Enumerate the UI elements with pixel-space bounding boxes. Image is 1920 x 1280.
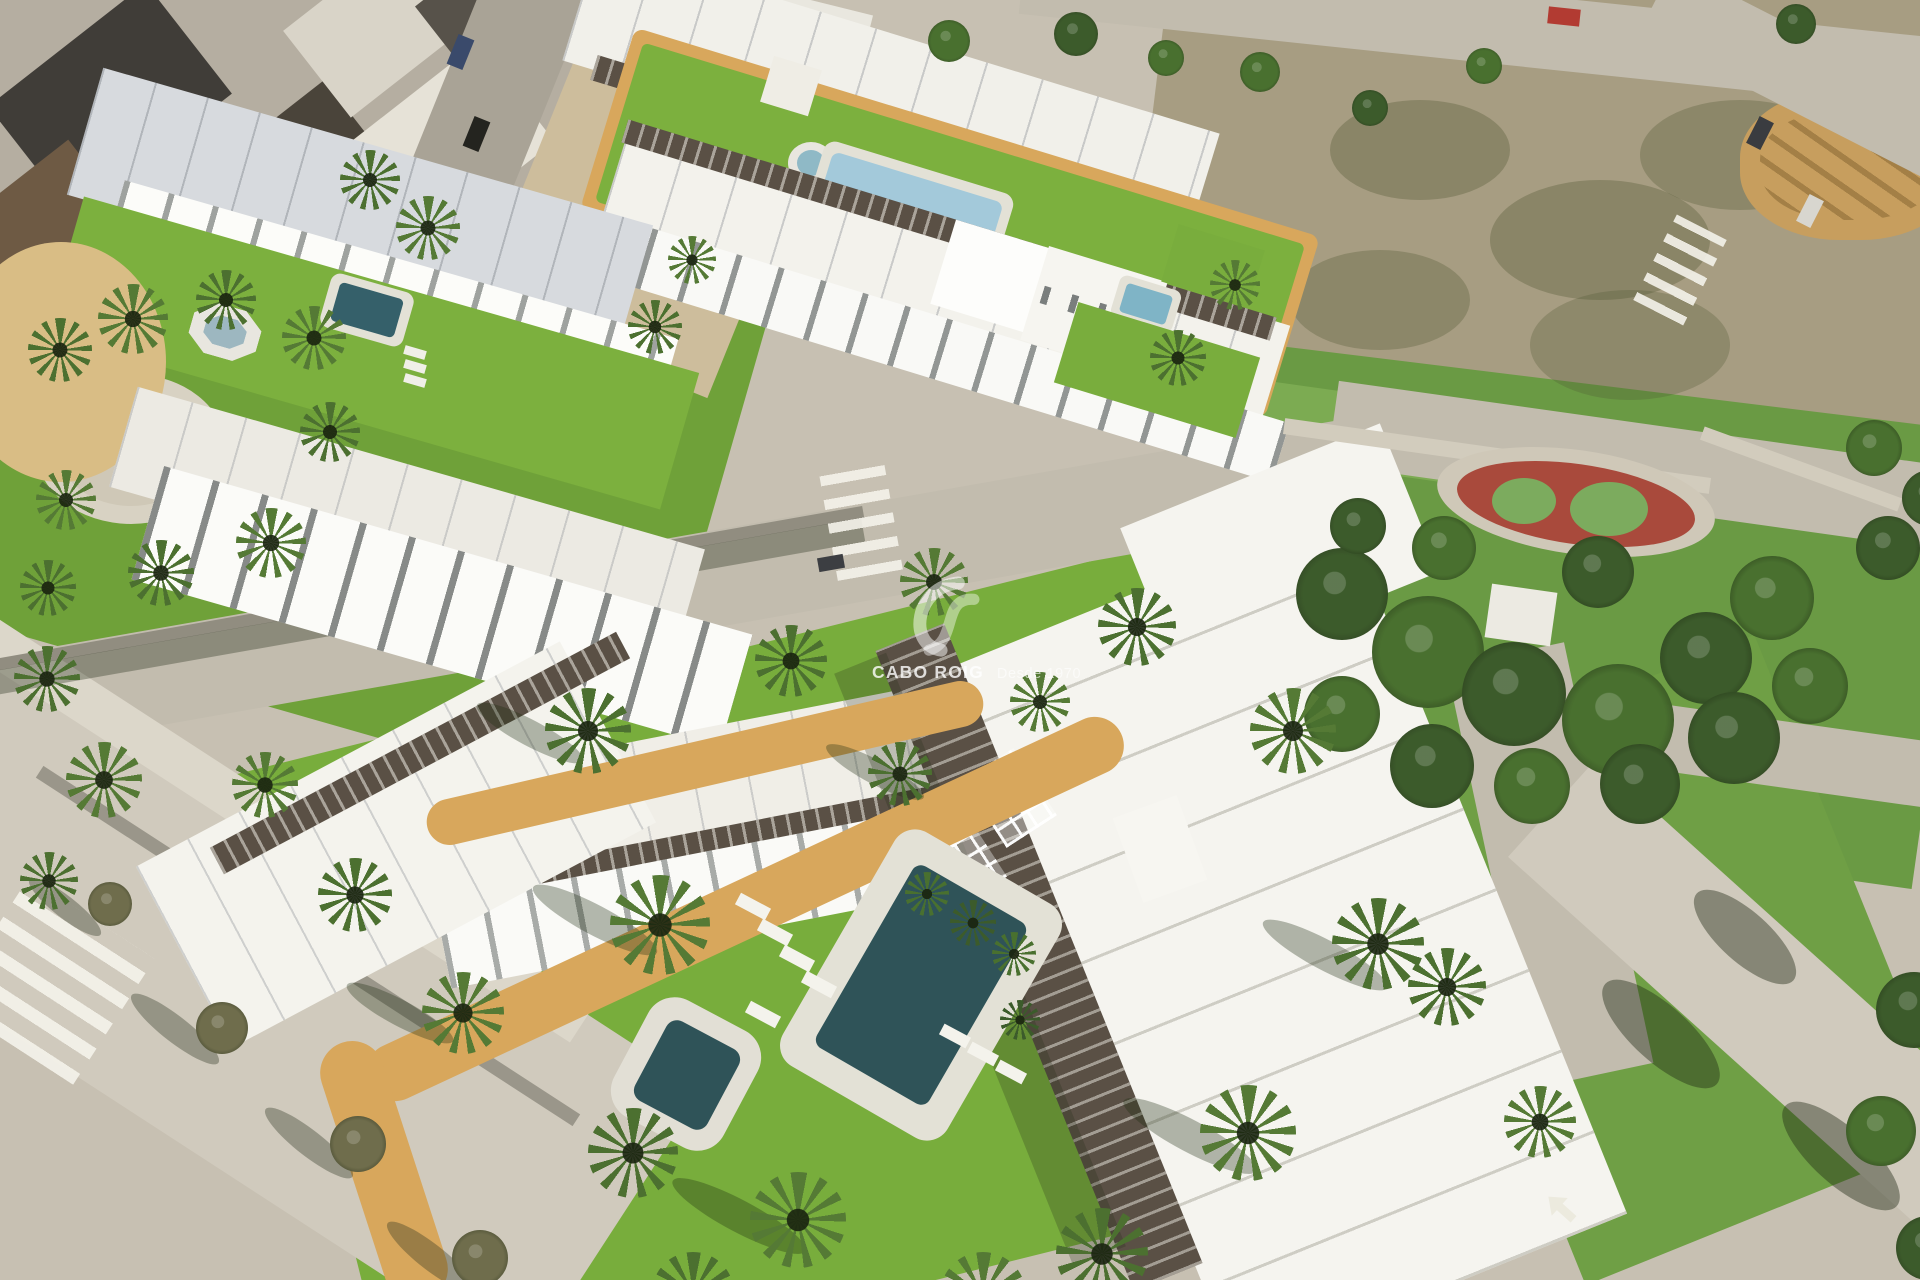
palm-tree xyxy=(422,972,504,1054)
palm-tree xyxy=(868,742,932,806)
park-kiosk xyxy=(1485,584,1558,647)
aerial-render-image: CABO ROIG Desde 1970 xyxy=(0,0,1920,1280)
palm-tree xyxy=(300,402,360,462)
palm-tree xyxy=(1150,330,1206,386)
park-tree xyxy=(1688,692,1780,784)
park-tree xyxy=(1412,516,1476,580)
palm-tree xyxy=(668,236,716,284)
street-tree xyxy=(196,1002,248,1054)
palm-tree xyxy=(1210,260,1260,310)
palm-tree xyxy=(20,560,76,616)
palm-tree xyxy=(755,625,827,697)
palm-tree xyxy=(36,470,96,530)
poolside-planter xyxy=(905,872,949,916)
park-tree xyxy=(1846,420,1902,476)
palm-tree xyxy=(610,875,710,975)
palm-tree xyxy=(318,858,392,932)
cabo-roig-logo-icon xyxy=(886,574,998,660)
palm-tree xyxy=(396,196,460,260)
poolside-planter xyxy=(992,932,1036,976)
watermark-text: CABO ROIG Desde 1970 xyxy=(872,662,1081,683)
roadside-tree xyxy=(1240,52,1280,92)
palm-tree xyxy=(128,540,194,606)
roadside-tree xyxy=(928,20,970,62)
palm-tree xyxy=(1250,688,1336,774)
palm-tree xyxy=(232,752,298,818)
street-tree xyxy=(452,1230,508,1280)
park-tree xyxy=(1772,648,1848,724)
park-tree xyxy=(1562,536,1634,608)
park-tree xyxy=(1296,548,1388,640)
palm-tree xyxy=(20,852,78,910)
palm-tree xyxy=(1098,588,1176,666)
palm-tree xyxy=(14,646,80,712)
park-tree xyxy=(1462,642,1566,746)
palm-tree xyxy=(98,284,168,354)
roadside-tree xyxy=(1466,48,1502,84)
roadside-tree xyxy=(1846,1096,1916,1166)
palm-tree xyxy=(588,1108,678,1198)
watermark-title: CABO ROIG xyxy=(872,662,984,683)
palm-tree xyxy=(196,270,256,330)
palm-tree xyxy=(628,300,682,354)
park-tree xyxy=(1660,612,1752,704)
street-tree xyxy=(330,1116,386,1172)
park-tree xyxy=(1330,498,1386,554)
park-tree xyxy=(1600,744,1680,824)
dirt-mottle xyxy=(1530,290,1730,400)
roadside-tree xyxy=(1776,4,1816,44)
red-car xyxy=(1547,6,1581,26)
poolside-planter xyxy=(1000,1000,1040,1040)
roadside-tree xyxy=(1148,40,1184,76)
roadside-tree xyxy=(1352,90,1388,126)
watermark: CABO ROIG Desde 1970 xyxy=(872,574,1081,683)
palm-tree xyxy=(28,318,92,382)
palm-tree xyxy=(340,150,400,210)
poolside-planter xyxy=(950,900,996,946)
palm-tree xyxy=(66,742,142,818)
palm-tree xyxy=(1408,948,1486,1026)
playground-patch xyxy=(1492,478,1556,524)
palm-tree xyxy=(750,1172,846,1268)
park-tree xyxy=(1856,516,1920,580)
palm-tree xyxy=(545,688,631,774)
palm-tree xyxy=(282,306,346,370)
dirt-mottle xyxy=(1290,250,1470,350)
watermark-subtitle: Desde 1970 xyxy=(997,666,1081,682)
playground-patch xyxy=(1570,482,1648,536)
roadside-tree xyxy=(1054,12,1098,56)
park-tree xyxy=(1390,724,1474,808)
park-tree xyxy=(1730,556,1814,640)
palm-tree xyxy=(1504,1086,1576,1158)
palm-tree xyxy=(1200,1085,1296,1181)
street-tree xyxy=(88,882,132,926)
palm-tree xyxy=(236,508,306,578)
park-tree xyxy=(1494,748,1570,824)
